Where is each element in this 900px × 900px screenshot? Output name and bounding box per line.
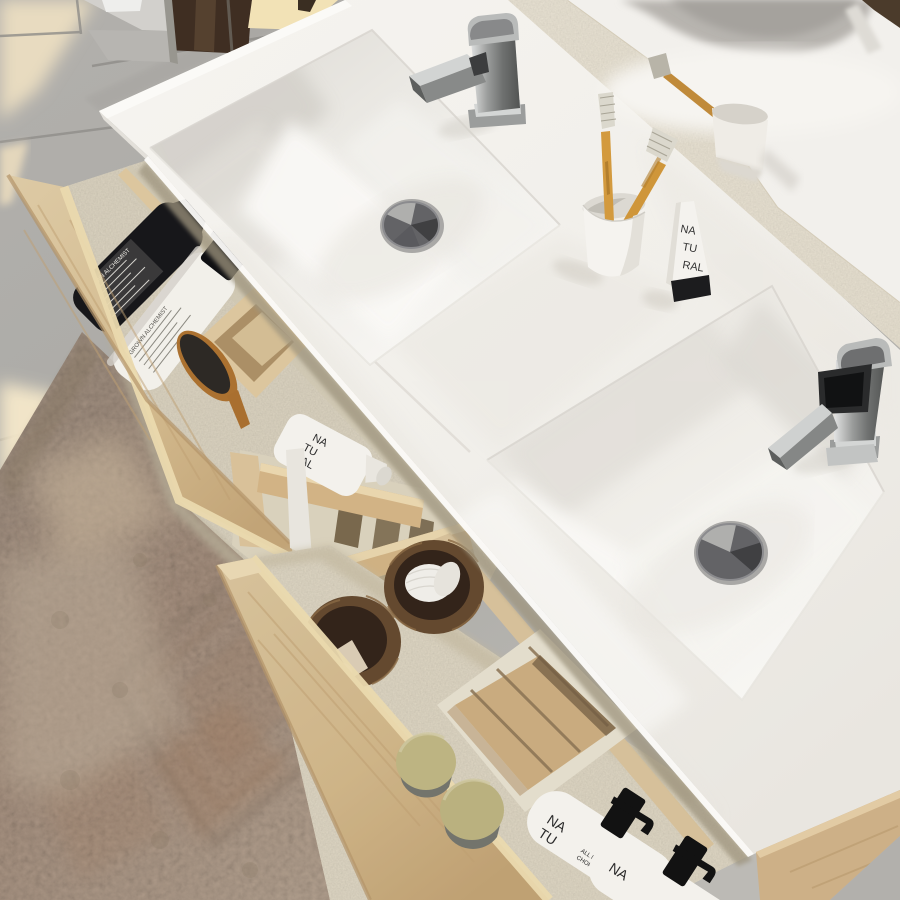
svg-text:TU: TU	[681, 241, 698, 255]
